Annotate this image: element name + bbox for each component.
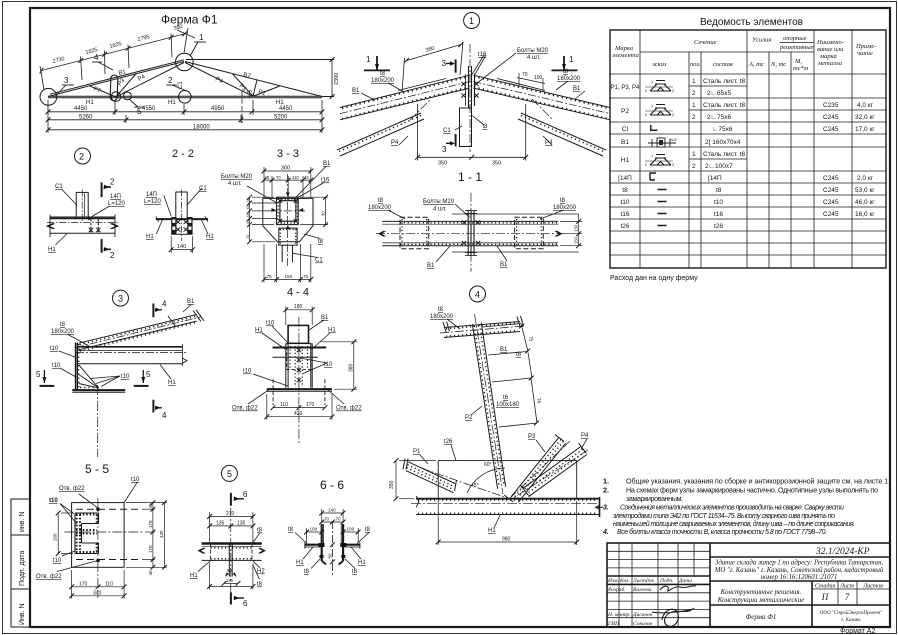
svg-text:H1: H1 bbox=[358, 560, 366, 566]
svg-text:C245: C245 bbox=[823, 211, 839, 218]
svg-text:B1: B1 bbox=[187, 299, 195, 305]
svg-text:170: 170 bbox=[148, 545, 153, 553]
svg-text:Отв. ф22: Отв. ф22 bbox=[336, 406, 362, 412]
svg-text:t8: t8 bbox=[378, 198, 384, 204]
svg-text:6 - 6: 6 - 6 bbox=[320, 478, 344, 492]
svg-text:2∟75x6: 2∟75x6 bbox=[707, 114, 731, 121]
svg-text:140: 140 bbox=[328, 508, 336, 513]
svg-text:P4: P4 bbox=[581, 433, 589, 439]
svg-text:45: 45 bbox=[265, 175, 270, 180]
svg-text:Дата: Дата bbox=[678, 578, 692, 584]
svg-text:Расход дан на одну ферму: Расход дан на одну ферму bbox=[610, 275, 698, 282]
svg-text:Сталь лист. t8: Сталь лист. t8 bbox=[703, 78, 746, 85]
svg-text:70: 70 bbox=[336, 517, 342, 522]
svg-text:180x200: 180x200 bbox=[553, 205, 577, 211]
svg-text:70: 70 bbox=[246, 235, 250, 239]
svg-text:t10: t10 bbox=[243, 369, 252, 375]
svg-text:17,0 кг: 17,0 кг bbox=[855, 126, 875, 133]
svg-text:16,0 кг: 16,0 кг bbox=[855, 211, 875, 218]
svg-text:N-8: N-8 bbox=[670, 137, 677, 142]
svg-text:140: 140 bbox=[177, 244, 186, 250]
svg-text:4: 4 bbox=[475, 290, 480, 300]
svg-text:4 шт.: 4 шт. bbox=[228, 181, 242, 187]
svg-text:110: 110 bbox=[280, 402, 288, 408]
svg-text:135: 135 bbox=[216, 520, 225, 526]
svg-text:3: 3 bbox=[442, 145, 447, 154]
svg-text:Листов: Листов bbox=[862, 584, 883, 590]
svg-text:1: 1 bbox=[199, 33, 204, 42]
svg-text:2 - 2: 2 - 2 bbox=[172, 148, 194, 160]
svg-text:Болты М20: Болты М20 bbox=[221, 174, 253, 180]
svg-text:5: 5 bbox=[146, 370, 151, 379]
svg-text:H1: H1 bbox=[255, 328, 263, 334]
svg-text:t16: t16 bbox=[620, 211, 629, 218]
svg-text:Отв. ф22: Отв. ф22 bbox=[232, 406, 258, 412]
svg-text:5260: 5260 bbox=[79, 114, 93, 120]
svg-text:3: 3 bbox=[442, 59, 447, 68]
svg-text:H1: H1 bbox=[168, 100, 176, 106]
svg-text:t10: t10 bbox=[121, 374, 130, 380]
svg-text:P4: P4 bbox=[391, 140, 399, 146]
svg-text:опорные: опорные bbox=[783, 35, 807, 42]
svg-text:2: 2 bbox=[692, 114, 696, 121]
svg-text:B1: B1 bbox=[621, 139, 629, 146]
svg-text:C245: C245 bbox=[823, 187, 839, 194]
svg-text:B1: B1 bbox=[321, 315, 329, 321]
svg-text:t8: t8 bbox=[257, 582, 263, 588]
svg-text:H1: H1 bbox=[296, 560, 304, 566]
svg-text:номер 16:16:120601:21071: номер 16:16:120601:21071 bbox=[761, 574, 838, 581]
svg-text:t8: t8 bbox=[257, 528, 263, 534]
svg-text:150: 150 bbox=[285, 274, 293, 279]
svg-text:Дисанов: Дисанов bbox=[632, 612, 653, 618]
svg-text:P1, P3, P4: P1, P3, P4 bbox=[611, 85, 640, 91]
svg-text:45: 45 bbox=[246, 198, 250, 202]
svg-text:C245: C245 bbox=[823, 199, 839, 206]
svg-text:вание или: вание или bbox=[817, 46, 844, 53]
svg-text:180x200: 180x200 bbox=[51, 329, 75, 335]
svg-text:t10: t10 bbox=[50, 346, 59, 352]
svg-text:30: 30 bbox=[321, 211, 326, 216]
svg-text:Конструктивные решения.: Конструктивные решения. bbox=[720, 588, 802, 596]
svg-text:Соединения металлических элеме: Соединения металлических элементов произ… bbox=[620, 504, 844, 512]
svg-text:1: 1 bbox=[569, 55, 574, 64]
svg-text:380: 380 bbox=[349, 363, 355, 372]
svg-text:Валеева: Валеева bbox=[633, 587, 652, 593]
svg-text:t8: t8 bbox=[318, 239, 324, 245]
svg-text:6: 6 bbox=[243, 490, 248, 499]
svg-text:Инв. N: Инв. N bbox=[19, 603, 26, 625]
svg-text:45: 45 bbox=[304, 175, 309, 180]
svg-text:t8: t8 bbox=[60, 322, 66, 328]
svg-text:H1: H1 bbox=[621, 157, 630, 164]
svg-text:Ферма Ф1: Ферма Ф1 bbox=[161, 13, 218, 27]
svg-text:инв. N: инв. N bbox=[19, 512, 26, 532]
svg-text:75: 75 bbox=[303, 274, 309, 279]
svg-text:t8: t8 bbox=[516, 352, 522, 358]
svg-text:2[ 160x70x4: 2[ 160x70x4 bbox=[705, 139, 741, 146]
svg-text:t8: t8 bbox=[304, 569, 310, 575]
svg-text:3: 3 bbox=[118, 294, 123, 304]
svg-text:1.: 1. bbox=[603, 477, 609, 486]
svg-text:Сечение: Сечение bbox=[694, 39, 717, 46]
svg-text:4: 4 bbox=[94, 53, 99, 62]
svg-text:76: 76 bbox=[535, 398, 542, 404]
svg-text:45: 45 bbox=[246, 205, 250, 209]
svg-text:П: П bbox=[821, 592, 829, 602]
svg-text:150: 150 bbox=[574, 224, 579, 232]
svg-text:t8: t8 bbox=[365, 527, 371, 533]
svg-text:t8: t8 bbox=[560, 198, 566, 204]
svg-text:H1: H1 bbox=[488, 528, 496, 534]
svg-text:N, тс: N, тс bbox=[770, 61, 786, 68]
svg-text:2: 2 bbox=[692, 163, 696, 170]
svg-text:50: 50 bbox=[327, 553, 332, 559]
svg-text:Болты М20: Болты М20 bbox=[517, 48, 549, 54]
svg-text:C235: C235 bbox=[823, 102, 839, 109]
svg-text:замаркированным.: замаркированным. bbox=[626, 494, 683, 503]
svg-text:45: 45 bbox=[246, 220, 250, 224]
svg-text:4550: 4550 bbox=[142, 106, 156, 112]
svg-text:18000: 18000 bbox=[193, 124, 210, 130]
svg-text:ООО "СтройЭнергоПроект": ООО "СтройЭнергоПроект" bbox=[820, 610, 883, 616]
svg-text:t10: t10 bbox=[131, 477, 140, 483]
svg-text:P3: P3 bbox=[528, 434, 536, 440]
svg-text:t26: t26 bbox=[620, 223, 629, 230]
svg-text:Марка: Марка bbox=[614, 45, 633, 52]
svg-text:эскиз: эскиз bbox=[652, 61, 667, 68]
svg-text:B1: B1 bbox=[500, 347, 508, 353]
svg-text:ГИП: ГИП bbox=[607, 621, 620, 627]
svg-text:6: 6 bbox=[243, 599, 248, 608]
svg-text:t10: t10 bbox=[620, 199, 629, 206]
svg-text:t8: t8 bbox=[716, 187, 722, 194]
svg-text:70: 70 bbox=[276, 175, 281, 180]
svg-text:[14П: [14П bbox=[618, 175, 632, 182]
svg-text:Стадия: Стадия bbox=[815, 583, 836, 590]
svg-text:70: 70 bbox=[324, 517, 330, 522]
svg-text:C1: C1 bbox=[199, 186, 207, 192]
svg-text:МО "г. Казань" г. Казань, Сове: МО "г. Казань" г. Казань, Советский райо… bbox=[714, 567, 884, 574]
svg-text:t26: t26 bbox=[444, 439, 453, 445]
svg-text:[14П: [14П bbox=[708, 175, 722, 182]
svg-text:металла: металла bbox=[817, 60, 842, 67]
svg-text:C1: C1 bbox=[55, 184, 63, 190]
svg-text:32,0 кг: 32,0 кг bbox=[855, 114, 875, 121]
svg-text:Подп.: Подп. bbox=[659, 577, 674, 584]
svg-text:Формат А2: Формат А2 bbox=[840, 628, 875, 635]
svg-text:40: 40 bbox=[148, 503, 153, 509]
svg-text:состав: состав bbox=[713, 61, 733, 68]
svg-text:1: 1 bbox=[692, 102, 696, 109]
svg-text:2.: 2. bbox=[603, 486, 609, 495]
svg-text:∟75x6: ∟75x6 bbox=[712, 126, 733, 133]
svg-text:100: 100 bbox=[310, 527, 318, 532]
svg-text:1: 1 bbox=[692, 78, 696, 85]
svg-text:тс*м: тс*м bbox=[793, 65, 808, 72]
svg-text:4950: 4950 bbox=[211, 106, 225, 112]
svg-text:t10: t10 bbox=[52, 363, 61, 369]
svg-text:А, тс: А, тс bbox=[748, 61, 764, 68]
svg-text:Все болты класса точности В, к: Все болты класса точности В, класса проч… bbox=[617, 528, 827, 536]
svg-text:180x200: 180x200 bbox=[557, 76, 581, 82]
svg-text:Здание склада литер 1 по адре: Здание склада литер 1 по адресу: Республ… bbox=[715, 560, 884, 567]
svg-text:270: 270 bbox=[226, 511, 235, 517]
svg-text:420: 420 bbox=[294, 411, 303, 417]
svg-text:t26: t26 bbox=[714, 223, 723, 230]
svg-text:г. Казань: г. Казань bbox=[841, 618, 861, 623]
svg-text:Отв. ф22: Отв. ф22 bbox=[36, 574, 62, 580]
svg-text:1: 1 bbox=[692, 151, 696, 158]
svg-text:t6: t6 bbox=[503, 395, 509, 401]
svg-text:Сталь лист. t8: Сталь лист. t8 bbox=[703, 102, 746, 109]
svg-text:H1: H1 bbox=[48, 247, 56, 253]
svg-text:75: 75 bbox=[527, 336, 534, 342]
svg-text:Приме-: Приме- bbox=[855, 43, 876, 50]
svg-text:Ферма Ф1: Ферма Ф1 bbox=[746, 613, 777, 621]
svg-text:3: 3 bbox=[64, 76, 69, 85]
svg-text:t10: t10 bbox=[266, 321, 275, 327]
svg-text:45: 45 bbox=[246, 213, 250, 217]
svg-text:45°: 45° bbox=[471, 483, 479, 489]
svg-text:4: 4 bbox=[162, 411, 167, 420]
svg-text:2: 2 bbox=[79, 152, 84, 162]
svg-text:2,0 кг: 2,0 кг bbox=[857, 175, 874, 182]
svg-text:100: 100 bbox=[347, 527, 355, 532]
svg-text:350: 350 bbox=[389, 480, 395, 489]
svg-text:H1: H1 bbox=[146, 234, 154, 240]
svg-text:75: 75 bbox=[267, 274, 273, 279]
svg-text:5: 5 bbox=[36, 370, 41, 379]
svg-text:P1: P1 bbox=[413, 449, 421, 455]
svg-text:H1: H1 bbox=[328, 328, 336, 334]
svg-text:4,0 кг: 4,0 кг bbox=[857, 102, 874, 109]
svg-text:Усилия: Усилия bbox=[752, 37, 771, 44]
svg-text:P2: P2 bbox=[465, 415, 473, 421]
svg-text:180x200: 180x200 bbox=[371, 78, 395, 84]
svg-text:340: 340 bbox=[93, 590, 102, 596]
svg-text:2∟100x7: 2∟100x7 bbox=[705, 163, 733, 170]
svg-text:t16: t16 bbox=[321, 178, 330, 184]
svg-text:t8: t8 bbox=[622, 187, 628, 194]
svg-text:4450: 4450 bbox=[74, 106, 88, 112]
svg-text:H1: H1 bbox=[190, 573, 198, 579]
svg-text:Изм.: Изм. bbox=[607, 578, 619, 584]
svg-text:реактивные: реактивные bbox=[779, 44, 814, 51]
svg-text:CI: CI bbox=[622, 126, 629, 133]
svg-text:7: 7 bbox=[845, 592, 850, 602]
svg-text:t8: t8 bbox=[380, 71, 386, 77]
svg-text:элемента: элемента bbox=[612, 52, 639, 59]
svg-text:53,0 кг: 53,0 кг bbox=[855, 187, 875, 194]
svg-text:2: 2 bbox=[168, 76, 173, 85]
svg-text:3 - 3: 3 - 3 bbox=[277, 148, 299, 160]
svg-text:t8: t8 bbox=[563, 69, 569, 75]
svg-text:Соколов: Соколов bbox=[633, 621, 653, 627]
svg-text:350: 350 bbox=[438, 161, 447, 167]
svg-text:180x200: 180x200 bbox=[430, 314, 454, 320]
svg-text:Наимено-: Наимено- bbox=[816, 39, 844, 46]
svg-text:180: 180 bbox=[294, 304, 303, 310]
svg-text:1: 1 bbox=[366, 55, 371, 64]
svg-text:наименьшей толщине свариваемых: наименьшей толщине свариваемых элементов… bbox=[613, 520, 855, 528]
svg-text:Лист: Лист bbox=[839, 584, 855, 590]
svg-text:4 шт.: 4 шт. bbox=[433, 207, 447, 213]
svg-text:1: 1 bbox=[469, 16, 474, 26]
svg-text:Н. контр.: Н. контр. bbox=[607, 612, 631, 618]
svg-text:t8: t8 bbox=[438, 307, 444, 313]
svg-text:4.: 4. bbox=[602, 529, 609, 536]
svg-text:H1: H1 bbox=[206, 234, 214, 240]
svg-text:110: 110 bbox=[105, 581, 113, 587]
svg-text:5200: 5200 bbox=[274, 114, 288, 120]
svg-text:4 - 4: 4 - 4 bbox=[287, 287, 309, 299]
svg-text:100: 100 bbox=[534, 75, 543, 81]
svg-text:Конструкции металлические: Конструкции металлические bbox=[717, 596, 805, 604]
svg-text:t8: t8 bbox=[288, 527, 294, 533]
svg-text:4450: 4450 bbox=[279, 106, 293, 112]
svg-text:поз.: поз. bbox=[690, 61, 701, 68]
svg-text:260: 260 bbox=[53, 533, 58, 541]
svg-text:H1: H1 bbox=[168, 380, 176, 386]
svg-text:C1: C1 bbox=[178, 81, 184, 89]
svg-text:t10: t10 bbox=[49, 498, 58, 504]
svg-text:t10: t10 bbox=[714, 199, 723, 206]
svg-text:4 шт.: 4 шт. bbox=[527, 55, 541, 61]
svg-text:32.1/2024-КР: 32.1/2024-КР bbox=[815, 547, 870, 557]
svg-text:350: 350 bbox=[492, 161, 501, 167]
svg-text:док: док bbox=[646, 577, 655, 584]
svg-text:электродами типа Э42 по ГОСТ 1: электродами типа Э42 по ГОСТ 11534–75. В… bbox=[613, 512, 835, 520]
svg-text:B1: B1 bbox=[573, 86, 581, 92]
svg-text:H2: H2 bbox=[257, 569, 265, 575]
svg-text:t8: t8 bbox=[352, 569, 358, 575]
svg-text:5: 5 bbox=[227, 469, 232, 479]
svg-text:4: 4 bbox=[162, 300, 167, 309]
svg-text:C245: C245 bbox=[823, 175, 839, 182]
svg-text:14П: 14П bbox=[146, 192, 157, 198]
svg-text:2: 2 bbox=[110, 178, 115, 187]
svg-text:170: 170 bbox=[306, 402, 315, 408]
svg-text:Отв. ф22: Отв. ф22 bbox=[59, 486, 85, 492]
svg-text:М,: М, bbox=[794, 58, 802, 65]
svg-text:Подп. дата: Подп. дата bbox=[19, 551, 26, 586]
svg-text:B1: B1 bbox=[352, 88, 360, 94]
svg-text:2: 2 bbox=[692, 90, 696, 97]
svg-text:170: 170 bbox=[148, 520, 153, 528]
svg-text:980: 980 bbox=[502, 537, 511, 543]
svg-text:L=120: L=120 bbox=[108, 201, 126, 207]
svg-text:B1: B1 bbox=[323, 161, 331, 167]
svg-text:t10: t10 bbox=[53, 558, 62, 564]
svg-text:46,0 кг: 46,0 кг bbox=[855, 199, 875, 206]
svg-text:Разраб.: Разраб. bbox=[607, 586, 626, 593]
svg-text:14П: 14П bbox=[110, 194, 121, 200]
svg-text:L=120: L=120 bbox=[144, 199, 162, 205]
svg-text:5 - 5: 5 - 5 bbox=[85, 462, 109, 476]
svg-text:C1: C1 bbox=[443, 128, 451, 134]
svg-text:2: 2 bbox=[110, 251, 115, 260]
svg-text:60°: 60° bbox=[484, 462, 492, 468]
svg-text:Ведомость элементов: Ведомость элементов bbox=[700, 17, 803, 28]
svg-text:2∟65x5: 2∟65x5 bbox=[707, 90, 731, 97]
svg-text:150: 150 bbox=[574, 236, 579, 244]
svg-text:C245: C245 bbox=[823, 114, 839, 121]
svg-text:1 - 1: 1 - 1 bbox=[458, 170, 482, 184]
svg-text:Общие указания, указания по сб: Общие указания, указания по сборке и ант… bbox=[626, 477, 890, 486]
svg-text:B1: B1 bbox=[500, 262, 508, 268]
svg-text:марка: марка bbox=[819, 53, 837, 60]
svg-text:50: 50 bbox=[227, 568, 232, 573]
svg-text:130: 130 bbox=[226, 578, 234, 583]
svg-text:C1: C1 bbox=[315, 258, 323, 264]
svg-text:C245: C245 bbox=[823, 126, 839, 133]
svg-text:2390: 2390 bbox=[334, 73, 340, 85]
svg-text:70: 70 bbox=[522, 72, 528, 78]
svg-text:Болты М20: Болты М20 bbox=[423, 199, 455, 205]
svg-text:110: 110 bbox=[292, 175, 299, 180]
svg-text:P2: P2 bbox=[621, 108, 629, 115]
svg-text:t16: t16 bbox=[714, 211, 723, 218]
svg-text:300: 300 bbox=[281, 166, 290, 172]
svg-text:40: 40 bbox=[148, 570, 153, 576]
svg-text:170: 170 bbox=[79, 581, 88, 587]
svg-text:430: 430 bbox=[159, 530, 164, 538]
svg-text:чание: чание bbox=[857, 50, 873, 57]
svg-text:Кол.: Кол. bbox=[619, 578, 630, 584]
svg-text:Сталь лист. t6: Сталь лист. t6 bbox=[703, 151, 746, 158]
svg-text:B1: B1 bbox=[427, 263, 435, 269]
svg-text:t8: t8 bbox=[483, 124, 489, 130]
svg-text:3.: 3. bbox=[603, 505, 609, 512]
svg-text:100x180: 100x180 bbox=[496, 402, 520, 408]
svg-text:135: 135 bbox=[237, 520, 246, 526]
